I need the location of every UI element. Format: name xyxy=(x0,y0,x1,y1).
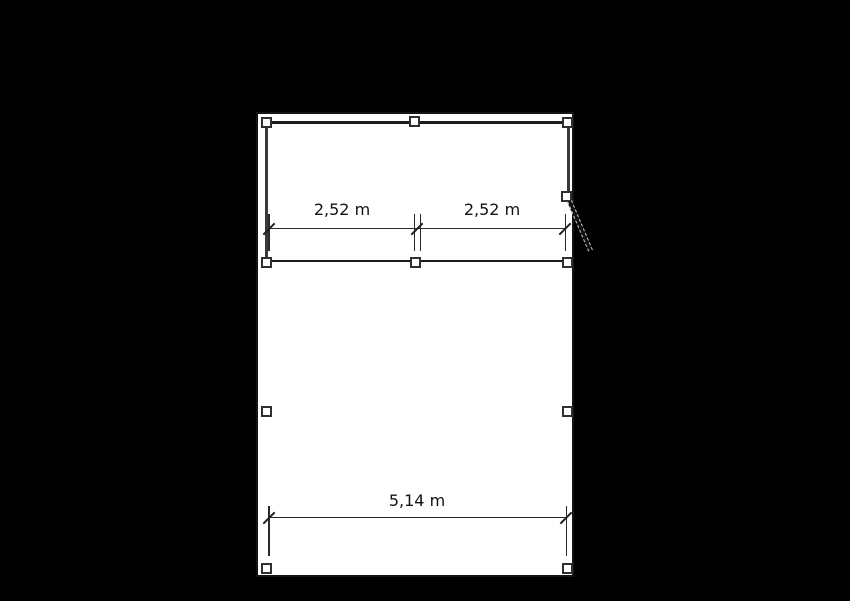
selection-handle-upper-bottom-right[interactable] xyxy=(562,257,573,268)
selection-handle-upper-bottom-left[interactable] xyxy=(261,257,272,268)
selection-handle-lower-bottom-left[interactable] xyxy=(261,563,272,574)
selection-handle-upper-top-mid[interactable] xyxy=(409,116,420,127)
selection-handle-lower-mid-left[interactable] xyxy=(261,406,272,417)
dim-ext-upper-left xyxy=(268,214,270,251)
dim-label-upper-right: 2,52 m xyxy=(464,202,520,218)
room-lower[interactable] xyxy=(261,265,571,565)
dim-ext-upper-right xyxy=(565,214,567,251)
upper-room-right-wall xyxy=(567,121,570,196)
dim-ext-bottom-right xyxy=(566,506,568,556)
dim-label-upper-left: 2,52 m xyxy=(314,202,370,218)
dim-ext-upper-mid-b xyxy=(420,214,422,251)
dim-line-bottom xyxy=(268,517,567,519)
selection-handle-lower-mid-right[interactable] xyxy=(562,406,573,417)
room-upper[interactable] xyxy=(268,124,566,259)
selection-handle-lower-bottom-right[interactable] xyxy=(562,563,573,574)
selection-handle-upper-bottom-mid[interactable] xyxy=(410,257,421,268)
dim-ext-bottom-left xyxy=(268,506,270,556)
dim-label-bottom: 5,14 m xyxy=(389,493,445,509)
editor-stage: 2,52 m 2,52 m 5,14 m xyxy=(0,0,850,601)
selection-handle-upper-top-left[interactable] xyxy=(261,117,272,128)
selection-handle-upper-top-right[interactable] xyxy=(562,117,573,128)
